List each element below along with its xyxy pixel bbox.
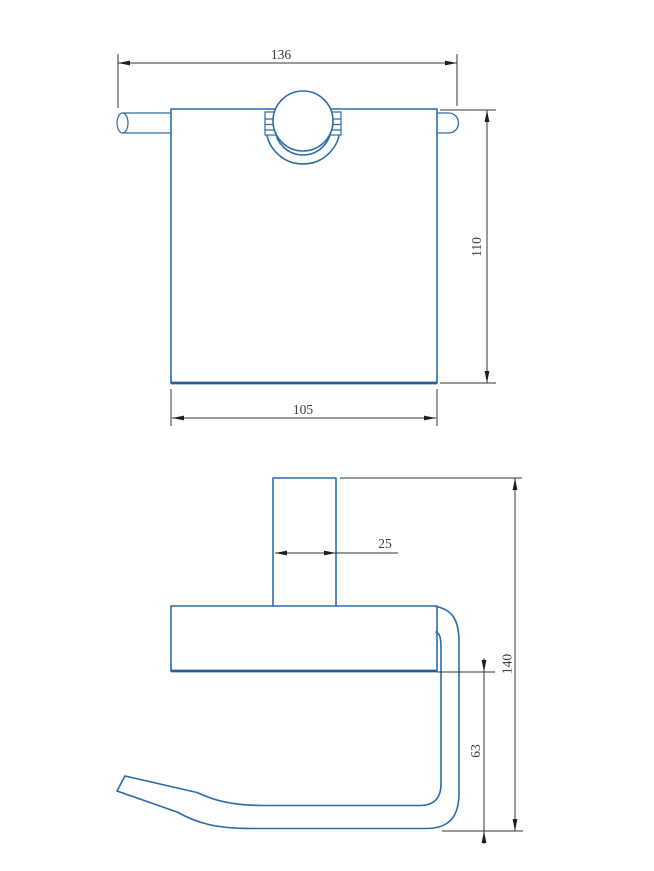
arrowhead-right: [324, 551, 336, 556]
holder-arm-outer-edge: [117, 607, 459, 829]
dim-label-overall-height: 110: [469, 237, 484, 257]
holder-arm-tip-cut: [117, 776, 125, 791]
dimension-plate-width: 105: [171, 389, 437, 426]
mounting-hub: [273, 91, 333, 151]
holder-arm-inner-edge: [125, 632, 441, 806]
dim-label-overall-width: 136: [271, 47, 292, 62]
extension-lines: [440, 110, 496, 383]
cover-plate-side: [171, 606, 437, 671]
arrowhead-left: [118, 61, 130, 66]
extension-lines: [340, 478, 523, 831]
dim-label-plate-width: 105: [293, 402, 314, 417]
wall-post: [273, 478, 336, 606]
engineering-drawing-canvas: 136 110 105 25: [0, 0, 654, 871]
arrowhead-right: [424, 416, 436, 421]
roll-bar-left: [123, 113, 171, 133]
arrowhead-left: [275, 551, 287, 556]
dim-label-post-width: 25: [378, 536, 392, 551]
dimension-overall-height-side: 140: [340, 478, 523, 831]
arrowhead-bottom-outside: [482, 831, 487, 843]
arrowhead-bottom: [513, 819, 518, 831]
arrowhead-left: [172, 416, 184, 421]
dimension-arm-drop: 63: [437, 658, 495, 844]
arrowhead-top: [513, 478, 518, 490]
dimension-overall-height-front: 110: [440, 110, 496, 383]
roll-bar-right: [437, 113, 459, 133]
arrowhead-right: [445, 61, 457, 66]
dim-label-overall-height-side: 140: [500, 654, 515, 675]
side-view: [117, 478, 459, 829]
arrowhead-bottom: [485, 371, 490, 383]
dim-label-arm-drop: 63: [468, 744, 483, 758]
arrowhead-top-outside: [482, 660, 487, 672]
drawing-page: 136 110 105 25: [0, 0, 654, 871]
arrowhead-top: [485, 110, 490, 122]
roll-bar-left-end-cap: [117, 113, 128, 133]
front-view: [117, 91, 459, 383]
